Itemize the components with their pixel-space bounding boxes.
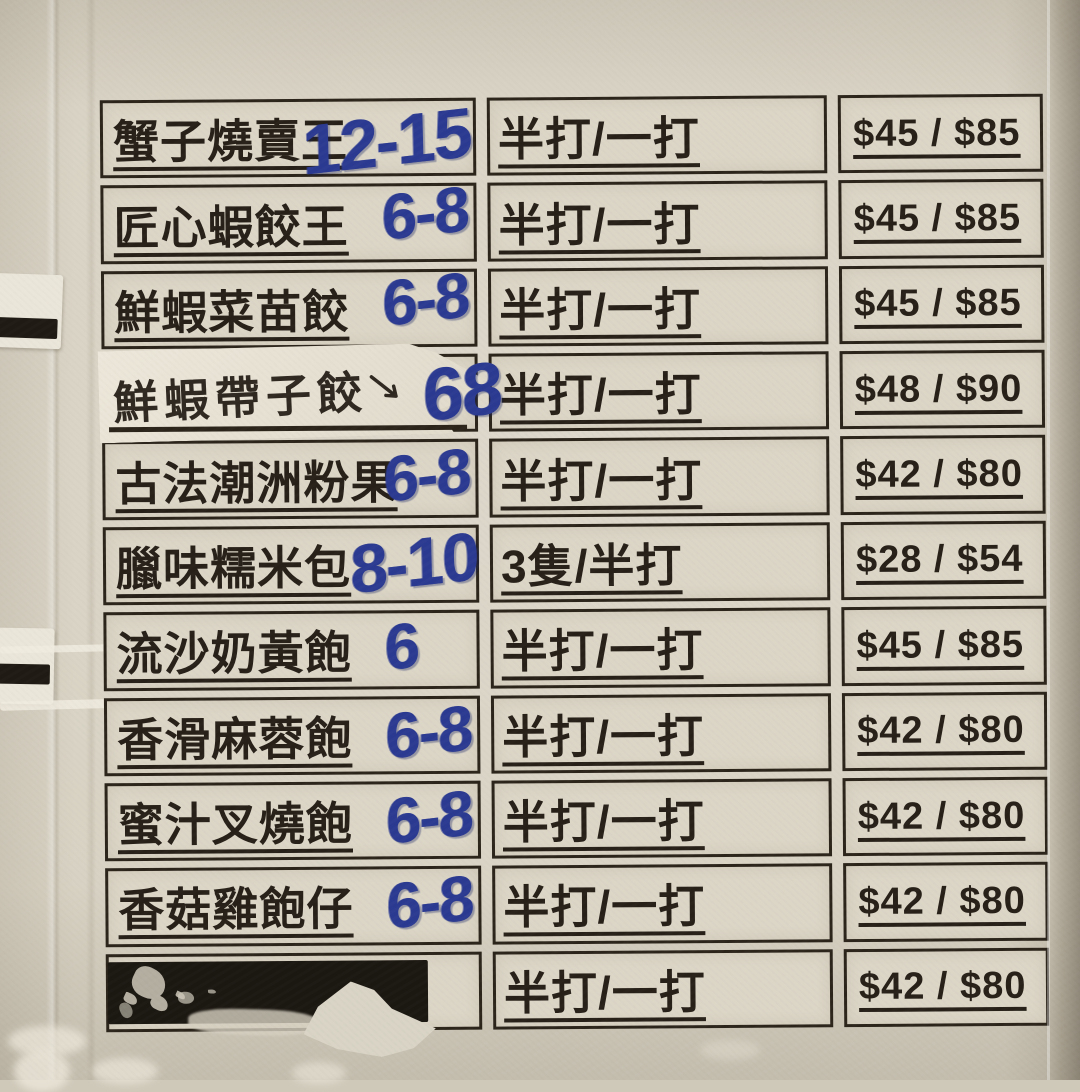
item-name: 臘味糯米包 [116, 532, 351, 600]
price-label: $42 / $80 [857, 709, 1025, 753]
portion-label: 半打/一打 [503, 871, 705, 938]
menu-row: 匠心蝦餃王 匠心蝦餃王 6-8 半打/一打 $45 / $85 [100, 179, 1046, 264]
paper-edge-black-bar [0, 663, 50, 684]
pen-arrow-icon [369, 374, 404, 405]
price-label: $45 / $85 [853, 197, 1021, 241]
torn-tape-patch [303, 979, 438, 1059]
item-cell: 匠心蝦餃王 匠心蝦餃王 6-8 [100, 183, 477, 264]
portion-label: 3隻/半打 [501, 529, 683, 596]
price-cell: $48 / $90 [840, 350, 1046, 430]
handwritten-count: 6-8 [381, 257, 469, 341]
item-cell: 蟹子燒賣王 蟹子燒賣王 12-15 [100, 98, 477, 179]
tape-smear [188, 1007, 319, 1037]
menu-row: 蜜汁叉燒飽 蜜汁叉燒飽 6-8 半打/一打 $42 / $80 [105, 777, 1051, 862]
menu-row: 蟹子燒賣王 蟹子燒賣王 12-15 半打/一打 $45 / $85 [100, 94, 1046, 179]
menu-row: 流沙奶黃飽 流沙奶黃飽 6 半打/一打 $45 / $85 [103, 606, 1049, 691]
item-cell: 香滑麻蓉飽 香滑麻蓉飽 6-8 [104, 695, 481, 776]
price-cell: $45 / $85 [839, 264, 1045, 344]
menu-row: 香滑麻蓉飽 香滑麻蓉飽 6-8 半打/一打 $42 / $80 [104, 691, 1050, 776]
redaction-speck [118, 1000, 135, 1019]
item-cell: 香菇雞飽仔 香菇雞飽仔 6-8 [105, 866, 482, 947]
redaction-speck [178, 991, 194, 1003]
paper-right-edge-shadow [1046, 0, 1080, 1080]
price-cell: $45 / $85 [838, 94, 1044, 174]
redaction-speck [127, 962, 170, 1003]
price-label: $42 / $80 [858, 880, 1026, 924]
item-cell: 臘味糯米包 臘味糯米包 8-10 [103, 524, 480, 605]
portion-cell: 半打/一打 [493, 949, 834, 1030]
item-name: 流沙奶黃飽 [116, 617, 351, 685]
menu-row: 臘味糯米包 臘味糯米包 8-10 3隻/半打 $28 / $54 [103, 521, 1049, 606]
price-cell: $45 / $85 [841, 606, 1047, 686]
handwritten-count: 6-8 [385, 775, 473, 859]
tape-smudge [92, 1058, 158, 1084]
item-name: 匠心蝦餃王 [113, 190, 348, 258]
paper-edge-tab [0, 273, 63, 349]
portion-cell: 半打/一打 [491, 693, 832, 774]
menu-photo-background: 蟹子燒賣王 蟹子燒賣王 12-15 半打/一打 $45 / $85 [0, 0, 1080, 1080]
portion-cell: 半打/一打 [489, 437, 830, 518]
portion-label: 半打/一打 [501, 614, 703, 681]
price-cell: $42 / $80 [843, 862, 1049, 942]
price-label: $45 / $85 [854, 282, 1022, 326]
portion-label: 半打/一打 [504, 956, 706, 1023]
price-cell: $42 / $80 [842, 691, 1048, 771]
price-cell: $42 / $80 [843, 777, 1049, 857]
handwritten-count: 8-10 [349, 517, 478, 610]
paper-crease [46, 0, 60, 1080]
handwritten-count: 68 [422, 344, 502, 438]
tape-smudge [14, 1050, 70, 1092]
portion-cell: 半打/一打 [489, 351, 830, 432]
item-name: 鮮蝦菜苗餃 [114, 275, 349, 343]
menu-row: 鮮蝦帶子餃 鮮蝦帶子餃 68 半打/一打 $48 / $90 [102, 350, 1048, 435]
portion-cell: 半打/一打 [490, 607, 831, 688]
handwritten-count: 6 [384, 607, 419, 685]
paper-crease [86, 0, 96, 1080]
portion-cell: 3隻/半打 [490, 522, 831, 603]
tape-smudge [292, 1062, 346, 1084]
price-label: $48 / $90 [855, 368, 1023, 412]
price-cell: $42 / $80 [840, 435, 1046, 515]
portion-cell: 半打/一打 [492, 778, 833, 859]
handwritten-count: 6-8 [384, 690, 472, 774]
price-cell: $28 / $54 [841, 521, 1047, 601]
portion-cell: 半打/一打 [487, 181, 828, 262]
item-cell: 蜜汁叉燒飽 蜜汁叉燒飽 6-8 [105, 781, 482, 862]
tape-smudge [700, 1040, 760, 1060]
handwritten-count: 6-8 [380, 171, 468, 255]
price-label: $28 / $54 [856, 538, 1024, 582]
paper-edge-tab [0, 627, 55, 704]
menu-row: 鮮蝦菜苗餃 鮮蝦菜苗餃 6-8 半打/一打 $45 / $85 [101, 264, 1047, 349]
item-name: 香菇雞飽仔 [118, 873, 353, 941]
item-cell: 鮮蝦帶子餃 鮮蝦帶子餃 68 [102, 354, 479, 435]
paper-right-edge-highlight [1047, 0, 1050, 1080]
portion-label: 半打/一打 [498, 188, 700, 255]
handwritten-count: 6-8 [385, 860, 473, 944]
menu-price-table: 蟹子燒賣王 蟹子燒賣王 12-15 半打/一打 $45 / $85 [100, 94, 1051, 1033]
menu-row: 半打/一打 $42 / $80 [106, 947, 1052, 1032]
price-cell: $42 / $80 [844, 947, 1050, 1027]
portion-cell: 半打/一打 [492, 863, 833, 944]
price-label: $45 / $85 [856, 624, 1024, 668]
item-cell [106, 951, 483, 1032]
price-label: $42 / $80 [855, 453, 1023, 497]
menu-row: 古法潮洲粉果 古法潮洲粉果 6-8 半打/一打 $42 / $80 [102, 435, 1048, 520]
portion-label: 半打/一打 [498, 102, 700, 169]
portion-label: 半打/一打 [500, 358, 702, 425]
portion-cell: 半打/一打 [488, 266, 829, 347]
menu-row: 香菇雞飽仔 香菇雞飽仔 6-8 半打/一打 $42 / $80 [105, 862, 1051, 947]
redaction-bar [108, 960, 428, 1024]
paper-edge-black-bar [0, 317, 57, 339]
price-label: $42 / $80 [859, 965, 1027, 1009]
sticker-item-name: 鮮蝦帶子餃 [111, 355, 369, 432]
portion-label: 半打/一打 [500, 444, 702, 511]
item-name: 香滑麻蓉飽 [117, 702, 352, 770]
price-label: $42 / $80 [858, 794, 1026, 838]
portion-cell: 半打/一打 [487, 95, 828, 176]
item-cell: 古法潮洲粉果 古法潮洲粉果 6-8 [102, 439, 479, 520]
item-name: 古法潮洲粉果 [115, 446, 397, 514]
item-cell: 鮮蝦菜苗餃 鮮蝦菜苗餃 6-8 [101, 268, 478, 349]
item-name: 蜜汁叉燒飽 [118, 788, 353, 856]
handwritten-count: 6-8 [382, 434, 470, 518]
portion-label: 半打/一打 [503, 785, 705, 852]
portion-label: 半打/一打 [499, 273, 701, 340]
price-cell: $45 / $85 [838, 179, 1044, 259]
item-cell: 流沙奶黃飽 流沙奶黃飽 6 [103, 610, 480, 691]
price-label: $45 / $85 [853, 112, 1021, 156]
portion-label: 半打/一打 [502, 700, 704, 767]
